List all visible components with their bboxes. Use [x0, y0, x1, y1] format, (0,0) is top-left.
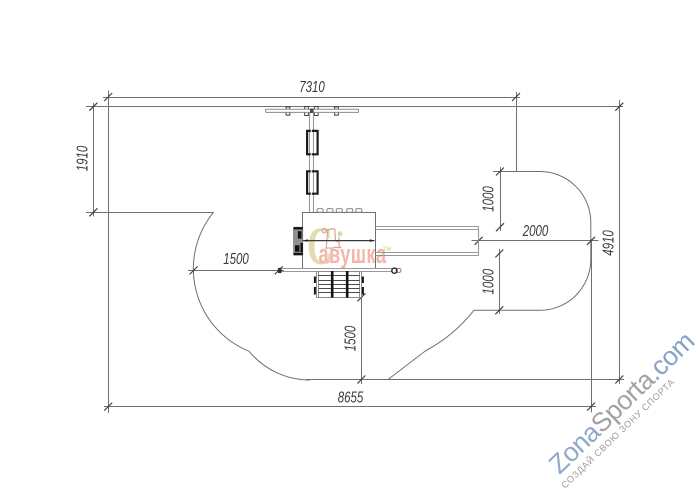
svg-text:7310: 7310: [299, 77, 325, 95]
svg-text:4910: 4910: [599, 230, 617, 256]
svg-text:1910: 1910: [73, 145, 91, 171]
svg-text:8655: 8655: [338, 388, 364, 406]
svg-text:1500: 1500: [341, 325, 359, 351]
svg-text:1500: 1500: [223, 249, 249, 267]
svg-text:2000: 2000: [522, 221, 549, 239]
svg-text:1000: 1000: [479, 186, 497, 212]
svg-text:1000: 1000: [478, 269, 496, 295]
svg-text:авушка: авушка: [319, 238, 387, 268]
